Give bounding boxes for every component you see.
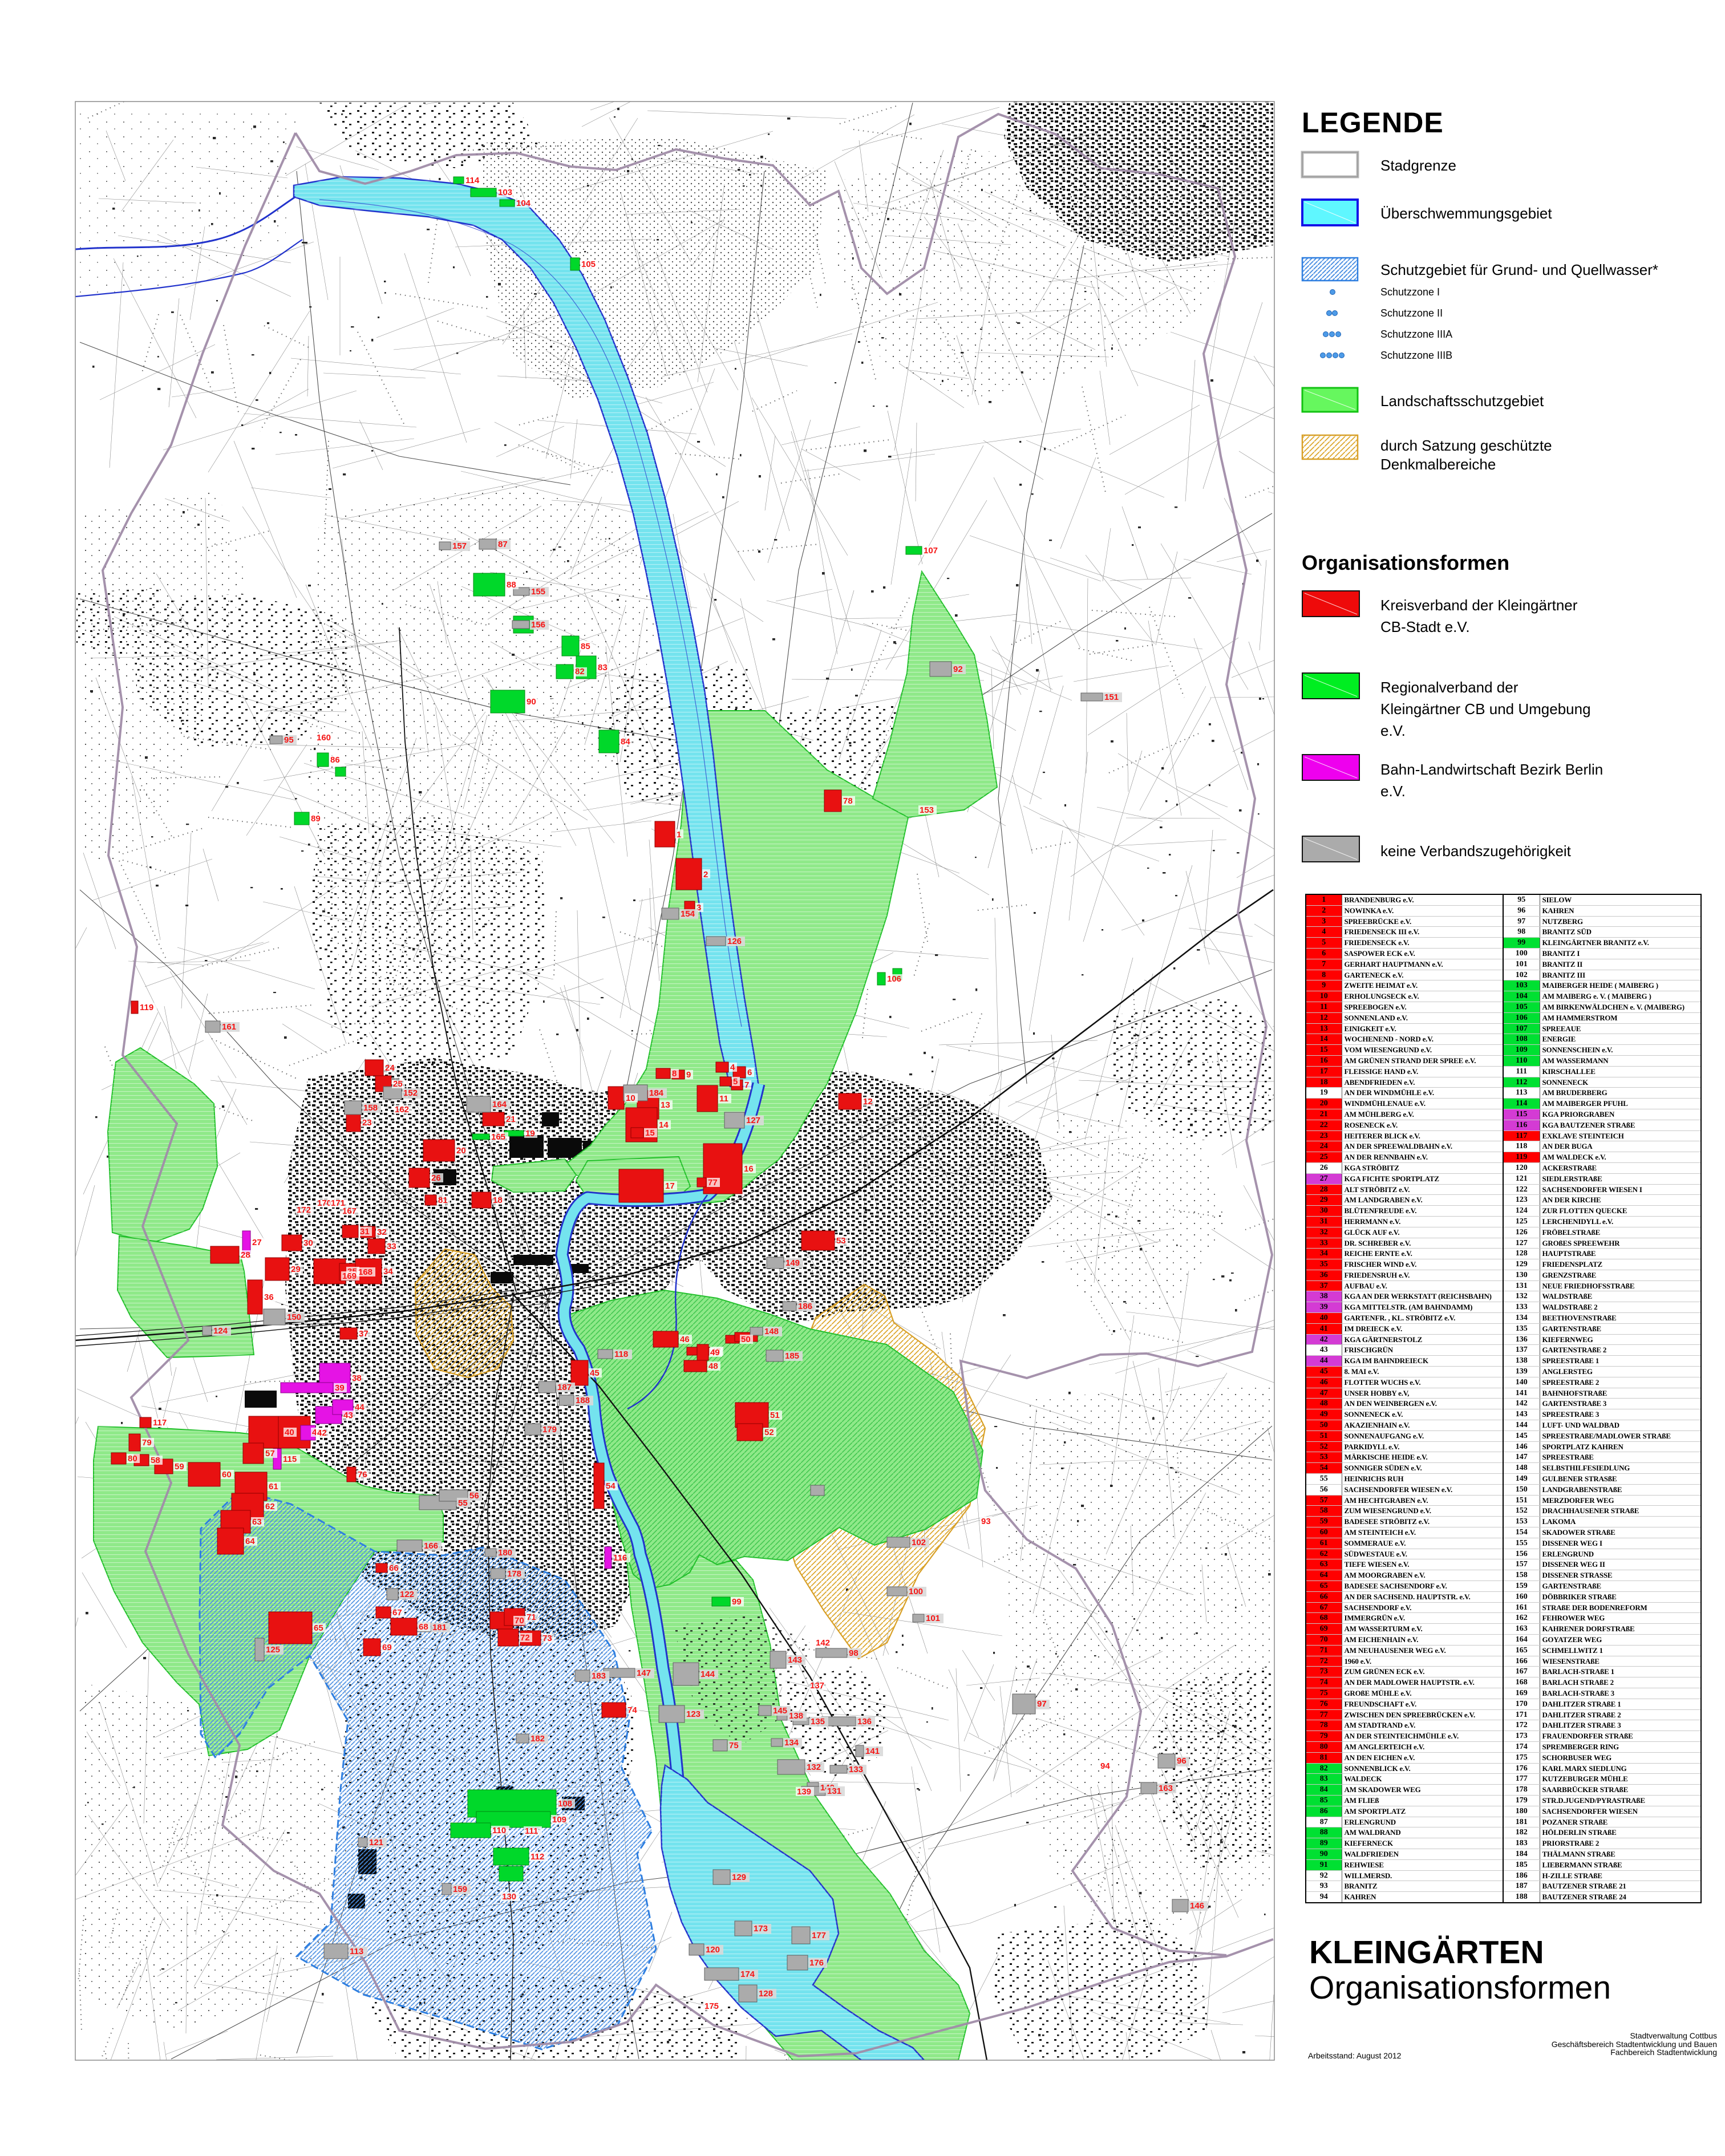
svg-text:81: 81 <box>438 1195 448 1205</box>
svg-text:72: 72 <box>520 1633 530 1643</box>
svg-text:104: 104 <box>516 198 531 208</box>
svg-text:166: 166 <box>424 1541 438 1551</box>
svg-text:181: 181 <box>432 1623 447 1632</box>
svg-text:133: 133 <box>849 1765 863 1774</box>
svg-text:113: 113 <box>350 1947 363 1956</box>
svg-text:90: 90 <box>527 697 536 707</box>
svg-text:188: 188 <box>576 1396 590 1405</box>
svg-text:163: 163 <box>1159 1784 1173 1793</box>
svg-text:24: 24 <box>385 1063 395 1073</box>
svg-text:128: 128 <box>759 1989 773 1999</box>
svg-text:135: 135 <box>811 1717 825 1727</box>
svg-text:23: 23 <box>362 1118 372 1128</box>
svg-text:186: 186 <box>798 1302 812 1311</box>
svg-text:28: 28 <box>241 1250 250 1260</box>
svg-text:107: 107 <box>924 546 938 556</box>
svg-text:137: 137 <box>810 1681 824 1691</box>
svg-text:108: 108 <box>558 1799 572 1809</box>
svg-text:147: 147 <box>637 1668 651 1678</box>
svg-text:63: 63 <box>252 1517 262 1527</box>
svg-text:102: 102 <box>912 1538 926 1547</box>
svg-text:177: 177 <box>812 1931 826 1940</box>
svg-text:87: 87 <box>498 540 508 549</box>
svg-text:178: 178 <box>507 1569 521 1579</box>
svg-text:18: 18 <box>493 1195 503 1205</box>
svg-text:119: 119 <box>140 1003 153 1012</box>
svg-text:174: 174 <box>740 1969 755 1979</box>
svg-text:176: 176 <box>809 1958 824 1968</box>
svg-text:54: 54 <box>606 1481 616 1491</box>
svg-text:37: 37 <box>359 1329 369 1339</box>
svg-text:155: 155 <box>531 587 545 597</box>
svg-text:66: 66 <box>389 1563 399 1573</box>
svg-text:139: 139 <box>797 1787 811 1797</box>
svg-text:2: 2 <box>703 870 708 880</box>
svg-text:95: 95 <box>284 735 294 745</box>
svg-text:61: 61 <box>269 1482 278 1492</box>
svg-text:151: 151 <box>1104 692 1119 702</box>
svg-text:82: 82 <box>575 667 585 676</box>
svg-text:179: 179 <box>542 1425 557 1434</box>
svg-text:161: 161 <box>222 1022 236 1032</box>
svg-text:117: 117 <box>153 1418 167 1428</box>
svg-text:183: 183 <box>592 1671 606 1681</box>
svg-text:33: 33 <box>387 1242 396 1251</box>
svg-text:184: 184 <box>649 1088 664 1098</box>
svg-text:141: 141 <box>865 1746 880 1756</box>
svg-text:172: 172 <box>297 1205 311 1215</box>
svg-text:40: 40 <box>285 1428 294 1437</box>
svg-text:45: 45 <box>590 1368 600 1378</box>
svg-text:42: 42 <box>317 1428 327 1438</box>
svg-text:105: 105 <box>581 260 596 269</box>
svg-text:85: 85 <box>581 642 590 651</box>
svg-text:12: 12 <box>863 1097 873 1107</box>
svg-text:165: 165 <box>491 1132 505 1142</box>
svg-text:15: 15 <box>645 1128 655 1138</box>
svg-text:175: 175 <box>704 2001 719 2011</box>
svg-text:123: 123 <box>686 1709 700 1719</box>
svg-text:185: 185 <box>785 1351 799 1361</box>
svg-text:187: 187 <box>557 1383 572 1392</box>
svg-text:152: 152 <box>403 1088 418 1098</box>
svg-text:157: 157 <box>452 541 467 551</box>
svg-text:134: 134 <box>784 1738 799 1748</box>
svg-text:182: 182 <box>531 1734 545 1744</box>
svg-text:71: 71 <box>527 1612 536 1622</box>
svg-text:110: 110 <box>492 1826 506 1835</box>
svg-text:136: 136 <box>857 1717 872 1727</box>
svg-text:68: 68 <box>419 1622 428 1632</box>
svg-text:164: 164 <box>492 1100 507 1109</box>
svg-text:162: 162 <box>395 1105 409 1115</box>
svg-text:118: 118 <box>614 1349 628 1359</box>
svg-text:153: 153 <box>920 805 934 815</box>
svg-text:64: 64 <box>245 1537 255 1546</box>
svg-text:51: 51 <box>770 1411 780 1420</box>
svg-text:99: 99 <box>732 1597 742 1607</box>
svg-text:86: 86 <box>330 755 340 765</box>
svg-text:80: 80 <box>128 1454 137 1464</box>
svg-text:167: 167 <box>342 1206 357 1216</box>
svg-text:46: 46 <box>680 1335 690 1344</box>
svg-text:29: 29 <box>291 1265 301 1274</box>
svg-text:116: 116 <box>613 1553 627 1563</box>
svg-text:31: 31 <box>360 1227 370 1237</box>
svg-text:89: 89 <box>311 814 321 824</box>
svg-text:146: 146 <box>1190 1901 1204 1911</box>
svg-text:30: 30 <box>303 1238 313 1248</box>
svg-text:32: 32 <box>377 1227 387 1237</box>
svg-text:83: 83 <box>598 663 608 672</box>
svg-text:131: 131 <box>827 1786 841 1796</box>
svg-text:13: 13 <box>661 1100 670 1110</box>
svg-text:103: 103 <box>498 188 512 197</box>
svg-text:27: 27 <box>252 1238 262 1247</box>
svg-text:126: 126 <box>727 937 742 946</box>
svg-text:10: 10 <box>626 1093 635 1103</box>
svg-text:25: 25 <box>393 1079 403 1089</box>
svg-text:148: 148 <box>764 1327 779 1336</box>
svg-text:48: 48 <box>708 1361 718 1371</box>
svg-text:39: 39 <box>335 1383 345 1393</box>
svg-text:156: 156 <box>531 620 545 630</box>
svg-text:55: 55 <box>458 1498 468 1508</box>
svg-text:115: 115 <box>283 1454 297 1464</box>
svg-text:150: 150 <box>287 1312 301 1322</box>
svg-text:34: 34 <box>383 1267 393 1276</box>
svg-text:92: 92 <box>953 664 963 674</box>
svg-text:160: 160 <box>317 733 331 743</box>
svg-text:74: 74 <box>627 1705 637 1715</box>
svg-text:111: 111 <box>525 1826 538 1836</box>
svg-text:26: 26 <box>431 1173 441 1183</box>
svg-text:20: 20 <box>456 1146 466 1156</box>
svg-text:21: 21 <box>506 1115 516 1124</box>
svg-text:170: 170 <box>317 1198 331 1208</box>
svg-text:120: 120 <box>706 1945 720 1955</box>
svg-text:56: 56 <box>469 1491 479 1501</box>
svg-text:44: 44 <box>355 1403 365 1412</box>
svg-text:129: 129 <box>732 1873 746 1882</box>
svg-text:84: 84 <box>621 737 630 747</box>
svg-text:145: 145 <box>773 1706 787 1716</box>
svg-text:16: 16 <box>744 1164 754 1174</box>
svg-text:70: 70 <box>515 1616 524 1626</box>
svg-text:57: 57 <box>265 1449 275 1458</box>
svg-text:7: 7 <box>744 1080 749 1090</box>
svg-text:67: 67 <box>392 1608 402 1618</box>
svg-text:78: 78 <box>843 796 853 806</box>
svg-text:112: 112 <box>531 1852 544 1862</box>
svg-text:49: 49 <box>710 1348 720 1357</box>
svg-text:1: 1 <box>677 830 681 840</box>
svg-text:173: 173 <box>754 1924 768 1934</box>
svg-text:96: 96 <box>1177 1756 1187 1766</box>
svg-text:149: 149 <box>785 1258 800 1268</box>
svg-text:19: 19 <box>525 1129 535 1138</box>
svg-text:168: 168 <box>358 1267 372 1277</box>
svg-text:114: 114 <box>465 176 480 185</box>
svg-text:9: 9 <box>686 1070 691 1080</box>
svg-text:52: 52 <box>764 1428 774 1437</box>
svg-text:50: 50 <box>741 1335 751 1344</box>
svg-text:43: 43 <box>343 1411 353 1420</box>
svg-text:65: 65 <box>314 1623 323 1633</box>
svg-text:94: 94 <box>1100 1761 1110 1771</box>
svg-text:154: 154 <box>681 909 695 919</box>
svg-text:88: 88 <box>507 580 516 590</box>
svg-text:158: 158 <box>363 1103 378 1113</box>
svg-text:79: 79 <box>142 1438 152 1448</box>
svg-text:17: 17 <box>665 1181 675 1191</box>
svg-text:38: 38 <box>352 1373 362 1383</box>
svg-text:121: 121 <box>369 1838 383 1847</box>
svg-text:62: 62 <box>265 1502 275 1511</box>
svg-text:109: 109 <box>552 1815 566 1825</box>
svg-text:4: 4 <box>730 1063 735 1072</box>
svg-text:69: 69 <box>382 1643 392 1652</box>
svg-text:93: 93 <box>981 1517 991 1526</box>
svg-text:159: 159 <box>453 1885 467 1894</box>
svg-text:75: 75 <box>729 1741 739 1750</box>
svg-text:14: 14 <box>659 1120 669 1130</box>
svg-text:180: 180 <box>498 1548 512 1558</box>
svg-text:127: 127 <box>746 1116 760 1125</box>
svg-text:138: 138 <box>789 1711 803 1721</box>
svg-text:58: 58 <box>151 1456 160 1465</box>
svg-text:98: 98 <box>849 1648 859 1658</box>
svg-text:106: 106 <box>887 974 901 984</box>
svg-text:100: 100 <box>909 1587 923 1596</box>
svg-text:122: 122 <box>400 1590 414 1599</box>
svg-text:143: 143 <box>788 1655 802 1665</box>
svg-text:97: 97 <box>1037 1699 1047 1709</box>
svg-text:6: 6 <box>747 1068 752 1077</box>
svg-text:132: 132 <box>807 1762 821 1772</box>
svg-text:101: 101 <box>926 1614 940 1623</box>
svg-text:142: 142 <box>816 1638 830 1648</box>
svg-text:130: 130 <box>502 1892 516 1902</box>
svg-text:124: 124 <box>213 1326 228 1336</box>
svg-text:60: 60 <box>222 1470 232 1480</box>
svg-text:77: 77 <box>708 1178 718 1188</box>
svg-text:76: 76 <box>358 1470 367 1480</box>
svg-text:53: 53 <box>836 1236 846 1246</box>
svg-text:73: 73 <box>542 1634 552 1643</box>
svg-text:8: 8 <box>672 1069 677 1079</box>
svg-text:59: 59 <box>175 1462 184 1472</box>
svg-text:11: 11 <box>719 1094 728 1104</box>
svg-text:144: 144 <box>700 1669 715 1679</box>
svg-text:125: 125 <box>266 1645 280 1655</box>
svg-text:169: 169 <box>342 1271 357 1281</box>
svg-text:36: 36 <box>264 1292 274 1302</box>
svg-text:5: 5 <box>733 1077 738 1087</box>
